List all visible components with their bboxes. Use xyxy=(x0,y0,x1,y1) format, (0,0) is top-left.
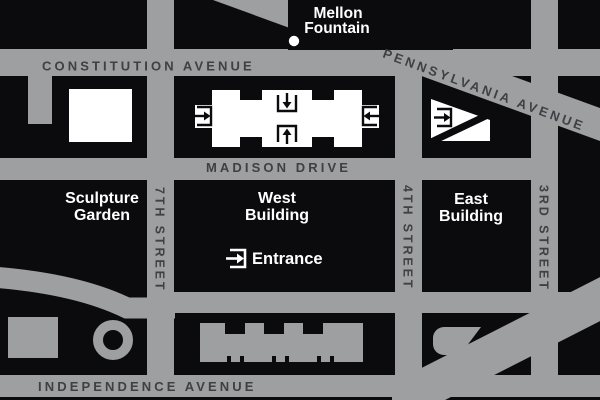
footprint-notch xyxy=(264,323,284,334)
footprint-notch xyxy=(303,323,323,334)
footprint-tick xyxy=(240,356,244,362)
footprint-tick xyxy=(285,356,289,362)
west-building-label-line1: West xyxy=(258,190,297,207)
footprint-notch xyxy=(225,323,245,334)
constitution-avenue-label: CONSTITUTION AVENUE xyxy=(42,59,255,74)
madison-drive-label: MADISON DRIVE xyxy=(206,160,351,175)
west-building-label-line2: Building xyxy=(245,207,309,224)
footprint-tick xyxy=(227,356,231,362)
footprint-sculpture-garden-pavilion xyxy=(69,89,132,142)
footprint-tick xyxy=(272,356,276,362)
east-building-label-line2: Building xyxy=(439,208,503,225)
7th-street-label: 7TH STREET xyxy=(153,187,167,292)
east-building-label-line1: East xyxy=(454,191,488,208)
independence-avenue-label: INDEPENDENCE AVENUE xyxy=(38,379,257,394)
entrance-label: Entrance xyxy=(252,250,323,268)
mellon-fountain-dot-icon xyxy=(289,36,299,46)
4th-street-label: 4TH STREET xyxy=(401,185,415,290)
sculpture-garden-label-line2: Garden xyxy=(74,207,130,224)
footprint-plaza-square xyxy=(8,317,58,358)
mellon-fountain-label-line2: Fountain xyxy=(304,20,369,37)
3rd-street-label: 3RD STREET xyxy=(537,185,551,292)
footprint-museum-south xyxy=(200,323,363,362)
sculpture-garden-label-line1: Sculpture xyxy=(65,190,139,207)
footprint-tick xyxy=(317,356,321,362)
street-map: CONSTITUTION AVENUE MADISON DRIVE INDEPE… xyxy=(0,0,600,400)
footprint-tick xyxy=(330,356,334,362)
